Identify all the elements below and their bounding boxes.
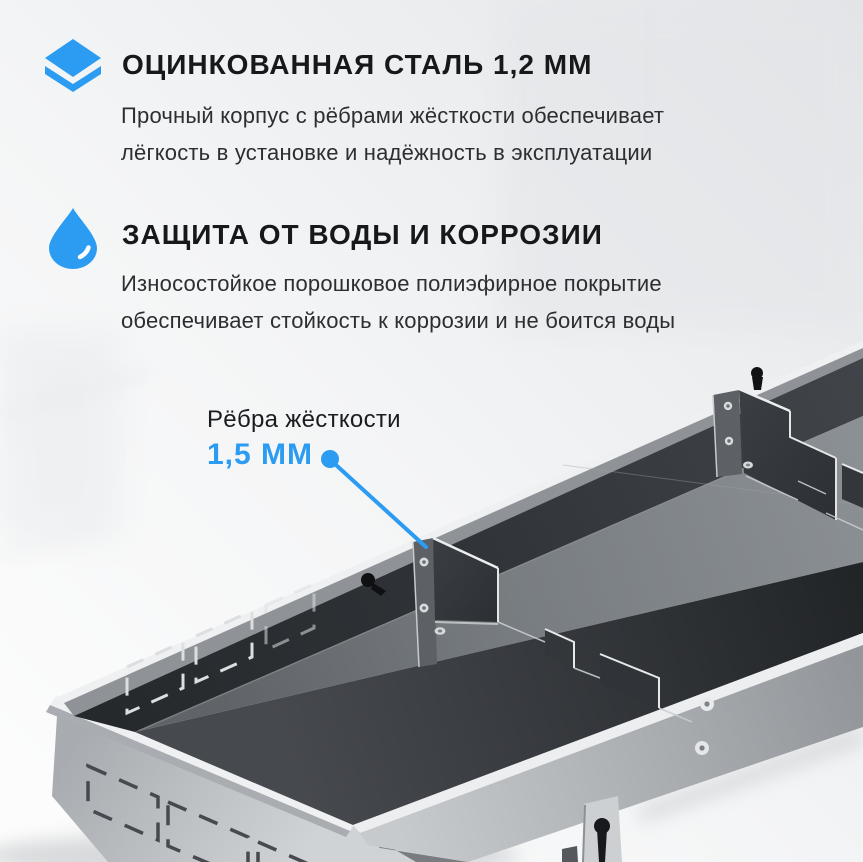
water-drop-icon (47, 206, 99, 270)
feature-description-line: Прочный корпус с рёбрами жёсткости обесп… (121, 97, 664, 134)
layers-icon (44, 38, 102, 92)
callout-value: 1,5 ММ (207, 438, 313, 472)
feature-description-line: обеспечивает стойкость к коррозии и не б… (121, 302, 675, 339)
feature-description-line: Износостойкое порошковое полиэфирное пок… (121, 265, 675, 302)
feature-title-corrosion: ЗАЩИТА ОТ ВОДЫ И КОРРОЗИИ (122, 220, 603, 250)
callout-dot (321, 450, 339, 468)
feature-description-line: лёгкость в установке и надёжность в эксп… (121, 134, 664, 171)
product-infographic: ОЦИНКОВАННАЯ СТАЛЬ 1,2 ММ Прочный корпус… (0, 0, 863, 862)
feature-description-steel: Прочный корпус с рёбрами жёсткости обесп… (121, 97, 664, 171)
feature-title-steel: ОЦИНКОВАННАЯ СТАЛЬ 1,2 ММ (122, 50, 592, 80)
feature-description-corrosion: Износостойкое порошковое полиэфирное пок… (121, 265, 675, 339)
callout-label: Рёбра жёсткости (207, 406, 401, 434)
